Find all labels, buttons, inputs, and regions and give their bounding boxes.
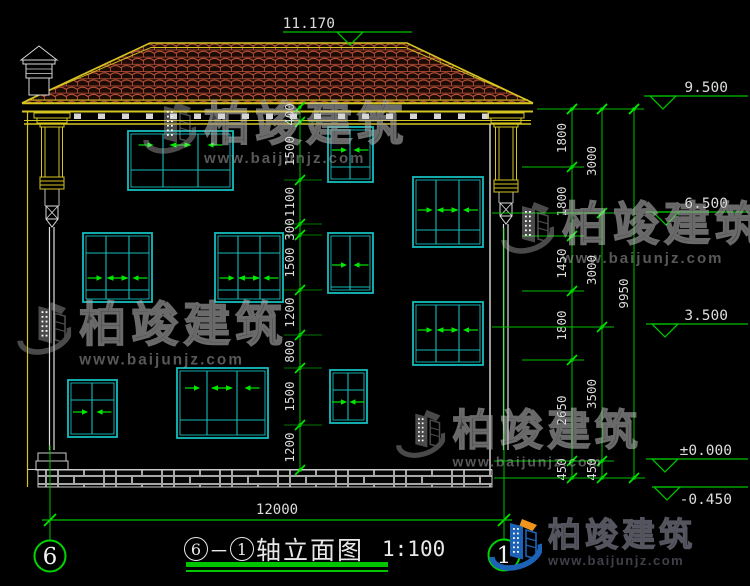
sliding-arrow xyxy=(463,207,478,213)
sliding-arrow xyxy=(220,275,235,281)
sliding-arrow xyxy=(418,327,433,333)
level-mark: 3.500 xyxy=(646,308,748,337)
level-value: 9.500 xyxy=(684,80,728,96)
dimension-value: 450 xyxy=(554,458,569,481)
brand-logo-icon xyxy=(486,517,542,582)
dimension-value: 1200 xyxy=(282,432,297,462)
dimension-value: 3000 xyxy=(584,146,599,176)
sliding-arrow xyxy=(245,385,260,391)
sliding-arrow xyxy=(133,275,148,281)
window-outer-frame xyxy=(128,131,233,190)
level-mark: 11.170 xyxy=(283,16,412,45)
sliding-arrow xyxy=(97,409,112,415)
dimension-value: 3500 xyxy=(584,379,599,409)
title-underline-thick xyxy=(186,562,388,567)
brand-logo-text: 柏竣建筑 xyxy=(548,517,696,553)
window xyxy=(328,233,373,293)
left-column xyxy=(34,113,70,470)
roof xyxy=(22,43,533,103)
window xyxy=(413,177,483,247)
sliding-arrow xyxy=(418,207,433,213)
dentil xyxy=(434,114,441,120)
dimension-value: 1200 xyxy=(282,297,297,327)
sliding-arrow xyxy=(88,275,103,281)
level-value: 3.500 xyxy=(684,308,728,324)
dentil xyxy=(338,114,345,120)
overall-dimension: 12000 xyxy=(42,502,512,526)
window-inner-frame xyxy=(131,134,230,187)
level-triangle xyxy=(652,324,678,337)
level-mark: ±0.000 xyxy=(646,443,748,472)
window xyxy=(330,370,367,423)
sliding-arrow xyxy=(238,275,260,281)
grid-axis: 6 xyxy=(35,445,66,572)
level-triangle xyxy=(650,96,676,109)
window-outer-frame xyxy=(413,302,483,365)
dentil xyxy=(314,114,321,120)
facade-walls xyxy=(28,112,491,487)
dimension-value: 1500 xyxy=(282,381,297,411)
sliding-arrow xyxy=(185,385,200,391)
dimension-value: 1450 xyxy=(554,248,569,278)
level-value: 11.170 xyxy=(283,16,335,32)
level-triangle xyxy=(654,487,680,500)
dimension-value: 9950 xyxy=(616,278,631,308)
dentil xyxy=(242,114,249,120)
window xyxy=(83,233,152,302)
window-outer-frame xyxy=(215,233,283,302)
chimney xyxy=(21,46,57,95)
sliding-arrow xyxy=(354,262,369,268)
dimension-value: 12000 xyxy=(256,502,298,518)
level-value: 6.500 xyxy=(684,196,728,212)
dentil xyxy=(386,114,393,120)
dimension-value: 450 xyxy=(584,458,599,481)
window xyxy=(215,233,283,302)
dentil xyxy=(362,114,369,120)
sliding-arrow xyxy=(211,385,233,391)
window-inner-frame xyxy=(180,371,265,435)
dimension-value: 2650 xyxy=(554,395,569,425)
brand-logo: 柏竣建筑 www.baijunjz.com xyxy=(486,517,696,582)
sliding-arrow xyxy=(332,399,347,405)
sliding-arrow xyxy=(332,147,347,153)
window xyxy=(68,380,117,437)
dentil xyxy=(122,114,129,120)
window-outer-frame xyxy=(83,233,152,302)
sliding-arrow xyxy=(264,275,279,281)
dimension-value: 1500 xyxy=(282,136,297,166)
sliding-arrow xyxy=(463,327,478,333)
sliding-arrow xyxy=(354,147,369,153)
window xyxy=(413,302,483,365)
dimension-value: 1800 xyxy=(554,123,569,153)
window xyxy=(128,131,233,190)
dimension-value: 1500 xyxy=(282,247,297,277)
level-triangle xyxy=(653,212,679,225)
eave-cornice xyxy=(22,104,533,125)
cad-elevation-drawing: 柏竣建筑www.baijunjz.com柏竣建筑www.baijunjz.com… xyxy=(0,0,750,586)
title-axis-end-circle: 1 xyxy=(230,537,254,561)
level-value: -0.450 xyxy=(680,492,732,508)
window-outer-frame xyxy=(177,368,268,438)
dentil xyxy=(194,114,201,120)
sliding-arrow xyxy=(170,142,192,148)
title-underline-thin xyxy=(186,570,388,572)
sliding-arrow xyxy=(437,327,459,333)
stone-plinth xyxy=(27,470,492,488)
dimension-value: 1800 xyxy=(554,186,569,216)
sliding-arrow xyxy=(332,262,347,268)
title-axis-start-circle: 6 xyxy=(184,537,208,561)
right-column xyxy=(488,113,524,450)
sliding-arrow xyxy=(73,409,88,415)
dimension-chain: 400150011003001500120080015001200 xyxy=(282,102,322,475)
sliding-arrow xyxy=(107,275,129,281)
dentil xyxy=(266,114,273,120)
column-pedestal xyxy=(38,453,66,461)
window-outer-frame xyxy=(413,177,483,247)
axis-number: 6 xyxy=(43,544,58,570)
column-pedestal xyxy=(36,461,68,470)
dentil xyxy=(170,114,177,120)
dentil xyxy=(74,114,81,120)
title-dash: － xyxy=(209,535,229,564)
sliding-arrow xyxy=(350,399,365,405)
dentil xyxy=(410,114,417,120)
dentil xyxy=(98,114,105,120)
dimension-value: 800 xyxy=(282,340,297,363)
sliding-arrow xyxy=(208,142,223,148)
dimension-value: 1800 xyxy=(554,310,569,340)
window xyxy=(328,127,373,182)
level-value: ±0.000 xyxy=(680,443,732,459)
window xyxy=(177,368,268,438)
building-logo-icon xyxy=(486,517,542,577)
dentil xyxy=(458,114,465,120)
window-inner-frame xyxy=(416,180,480,244)
level-mark: 9.500 xyxy=(644,80,748,109)
dimension-value: 400 xyxy=(282,103,297,126)
brand-logo-url: www.baijunjz.com xyxy=(548,553,696,568)
dentil xyxy=(218,114,225,120)
level-triangle xyxy=(652,459,678,472)
dimension-value: 3000 xyxy=(584,255,599,285)
sliding-arrow xyxy=(139,142,154,148)
dimension-chain: 9950 xyxy=(616,104,639,483)
dimension-chain: 300030003500450 xyxy=(584,104,607,483)
dimension-value: 300 xyxy=(282,218,297,241)
title-scale: 1:100 xyxy=(382,537,445,561)
level-mark: 6.500 xyxy=(646,196,748,225)
level-mark: -0.450 xyxy=(652,487,748,508)
elevation-scene: 4001500110030015001200800150012001800180… xyxy=(0,0,750,586)
window-inner-frame xyxy=(416,305,480,362)
dimension-value: 1100 xyxy=(282,187,297,217)
dimension-chain: 18001800145018002650450 xyxy=(554,104,577,483)
dentil xyxy=(146,114,153,120)
sliding-arrow xyxy=(437,207,459,213)
